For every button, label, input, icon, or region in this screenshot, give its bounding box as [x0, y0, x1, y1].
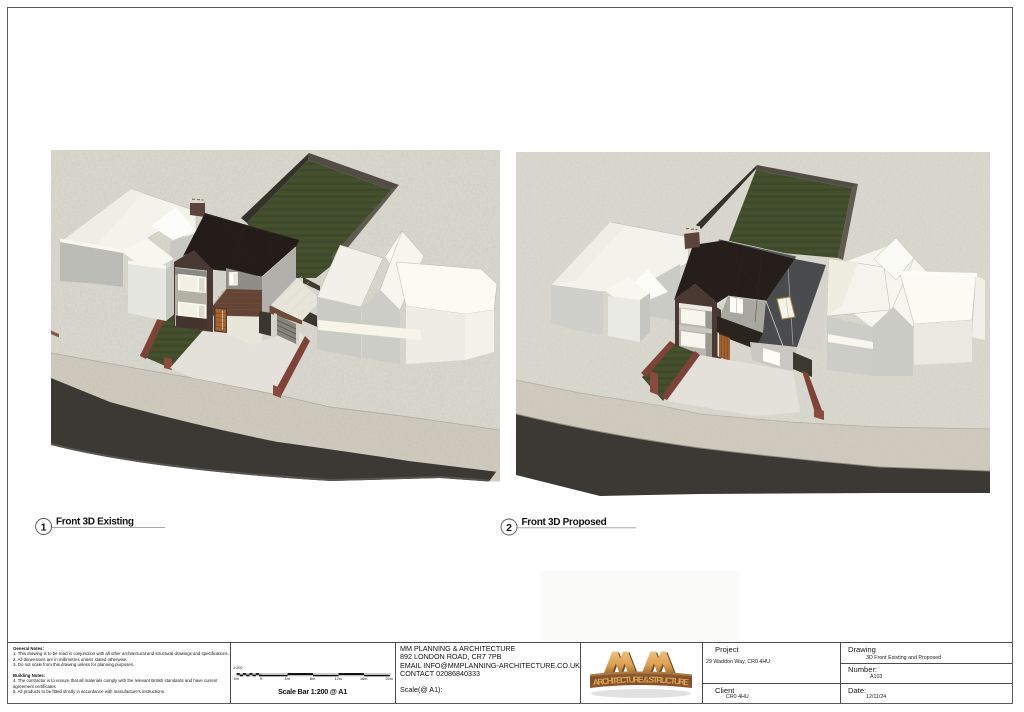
svg-text:2: 2 — [506, 522, 512, 534]
svg-text:Front 3D Existing: Front 3D Existing — [56, 517, 134, 528]
svg-text:1: 1 — [41, 521, 47, 533]
svg-text:Front 3D Proposed: Front 3D Proposed — [522, 517, 607, 528]
svg-text:ARCHITECTURE & STRUCTURE: ARCHITECTURE & STRUCTURE — [592, 674, 690, 687]
